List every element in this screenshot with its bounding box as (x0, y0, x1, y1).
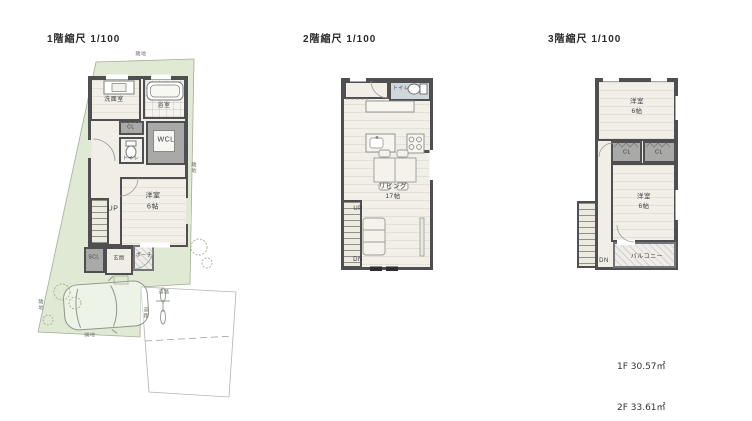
kitchen-wall-stub (423, 150, 433, 153)
room-label-entrance: 玄関 (113, 257, 124, 262)
site-label-adjacent-bottom: 隣地 (84, 333, 95, 339)
room-label-toilet-1f: トイレ (123, 157, 140, 162)
area-2f: 2F 33.61㎡ (617, 402, 732, 416)
room-bedroom-1f (120, 177, 188, 247)
road-centerline (145, 336, 233, 341)
label-stairs-down-3f: DN (599, 258, 609, 264)
car-icon (62, 274, 150, 337)
area-1f: 1F 30.57㎡ (617, 361, 732, 375)
road-area (141, 287, 236, 397)
room-label-toilet-2f: トイレ (393, 87, 410, 92)
room-label-closet-3f-right: CL (655, 150, 663, 156)
room-label-bedroom-3f-top-size: 6帖 (631, 109, 642, 116)
room-label-wcl: WCL (157, 137, 174, 144)
site-label-road: 道路 (158, 291, 169, 296)
room-label-bedroom-1f: 洋室 (146, 193, 161, 200)
room-label-closet-3f-left: CL (623, 150, 631, 156)
room-label-bedroom-3f-mid: 洋室 (637, 194, 651, 201)
room-label-living: リビング (379, 184, 407, 191)
site-label-adjacent-left: 隣地 (38, 299, 43, 311)
stairs-3f (577, 201, 597, 268)
site-label-adjacent-right: 隣地 (191, 162, 196, 174)
room-label-closet-1f: CL (127, 126, 134, 131)
room-bath (143, 78, 186, 119)
room-label-bath: 浴室 (157, 103, 170, 109)
floor2-title: 2階縮尺 1/100 (303, 30, 376, 45)
room-label-porch: ポーチ (136, 254, 153, 259)
room-label-shoe-closet: SCL (88, 256, 99, 261)
room-label-living-size: 17帖 (385, 194, 400, 201)
hall-2f (344, 81, 389, 99)
floor1-title: 1階縮尺 1/100 (47, 30, 120, 45)
site-label-adjacent-top: 隣地 (135, 53, 146, 58)
room-label-balcony: バルコニー (631, 254, 663, 260)
label-stairs-up-1f: UP (108, 206, 119, 213)
floorplan-canvas: 1階縮尺 1/100 2階縮尺 1/100 3階縮尺 1/100 (0, 0, 752, 421)
room-label-washroom: 洗面室 (104, 97, 124, 103)
site-label-road-side: 道路 (143, 307, 148, 319)
stairs-1f (90, 198, 109, 245)
room-label-bedroom-1f-size: 6帖 (147, 204, 159, 211)
floor3-title: 3階縮尺 1/100 (548, 30, 621, 45)
area-summary: 1F 30.57㎡ 2F 33.61㎡ 3F 29.96㎡ 延床 94.14㎡（… (617, 334, 732, 421)
label-stairs-down-2f: DN (353, 257, 363, 263)
garden-step-icon (114, 276, 128, 284)
label-stairs-up-2f: UP (353, 206, 362, 212)
room-label-bedroom-3f-mid-size: 6帖 (638, 204, 649, 211)
room-label-bedroom-3f-top: 洋室 (630, 99, 644, 106)
